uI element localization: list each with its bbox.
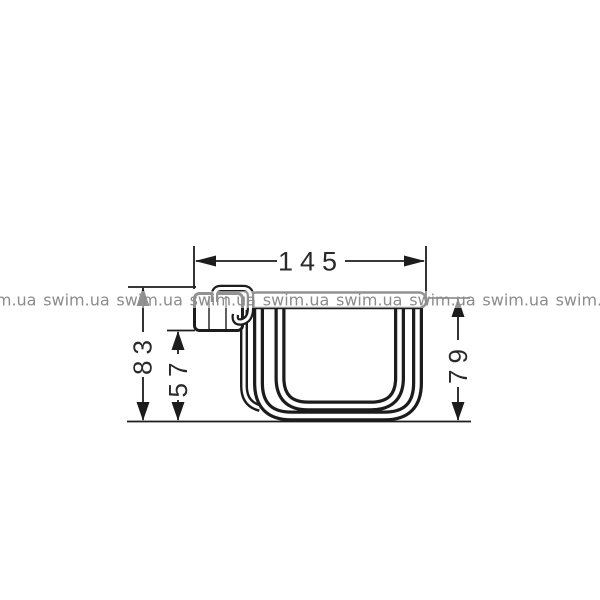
dim-width-label: 145 xyxy=(278,247,344,277)
technical-drawing-page: 145 83 57 79 xyxy=(0,0,600,600)
arrow-left xyxy=(195,256,216,267)
basket-inner-wire xyxy=(280,303,400,406)
arrow-down xyxy=(452,402,465,421)
dim-right-height-label: 79 xyxy=(443,343,473,384)
arrow-right xyxy=(404,256,425,267)
watermark-text: swim.ua xyxy=(263,291,329,310)
watermark-text: swim.ua xyxy=(190,291,256,310)
arrow-up xyxy=(172,331,185,350)
dimension-basket-height: 57 xyxy=(163,331,195,421)
technical-drawing: 145 83 57 79 xyxy=(0,0,600,600)
dimension-right-height: 79 xyxy=(428,298,473,421)
arrow-down xyxy=(137,402,150,421)
watermark-text: swim.ua xyxy=(556,291,600,310)
watermark-text: swim.ua xyxy=(116,291,182,310)
watermark-band: swim.ua swim.ua swim.ua swim.ua swim.ua … xyxy=(0,291,600,310)
dim-overall-height-label: 83 xyxy=(128,334,158,375)
arrow-down xyxy=(172,402,185,421)
watermark-text: swim.ua xyxy=(336,291,402,310)
watermark-text: swim.ua xyxy=(43,291,109,310)
basket-wires xyxy=(244,303,418,416)
watermark-text: swim.ua xyxy=(0,291,36,310)
dim-basket-height-label: 57 xyxy=(163,357,193,398)
watermark-text: swim.ua xyxy=(409,291,475,310)
watermark-text: swim.ua xyxy=(482,291,548,310)
